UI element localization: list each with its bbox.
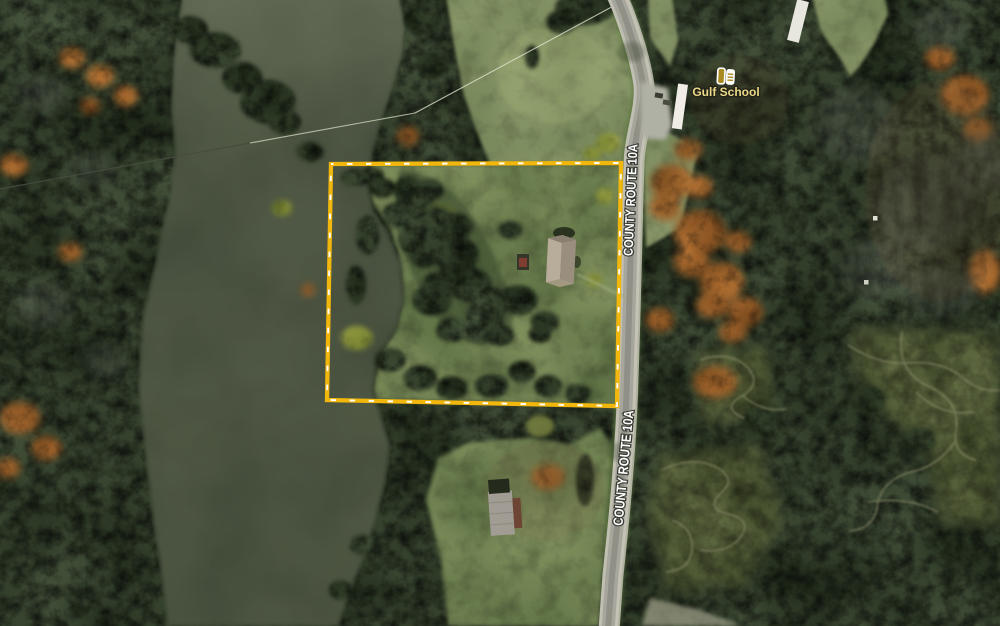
svg-text:Gulf School: Gulf School [692, 85, 759, 99]
